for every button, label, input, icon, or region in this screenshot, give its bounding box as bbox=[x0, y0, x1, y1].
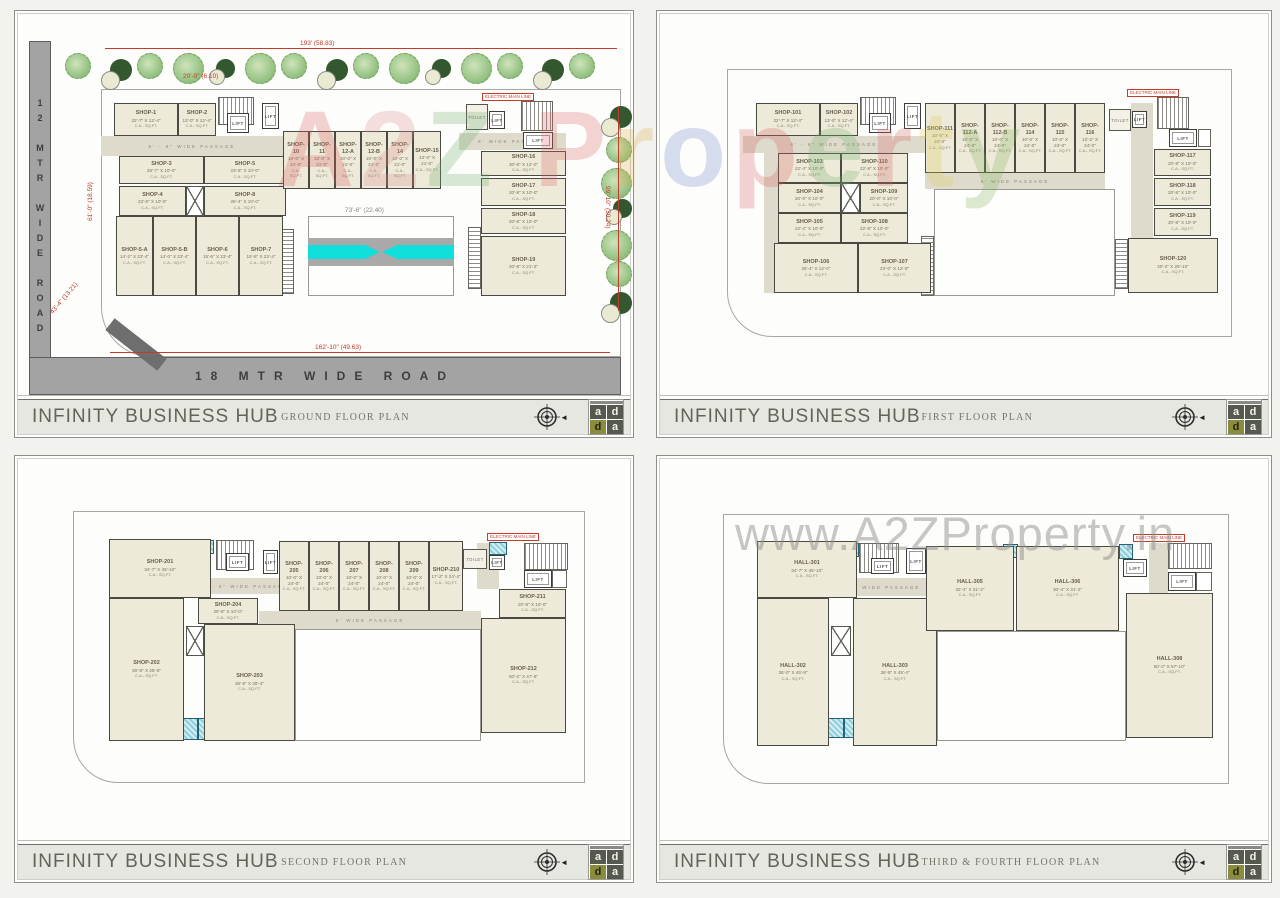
tree bbox=[601, 106, 632, 137]
room-shop-114: SHOP-11410'-0" X 24'-0"C.A.- SQ.FT. bbox=[1015, 103, 1045, 173]
electric-main-line-label: ELECTRIC MAIN LINE bbox=[487, 533, 539, 541]
dimension-label: 193' (58.83) bbox=[300, 40, 335, 47]
room-shop-11: SHOP-1110'-0" X 21'-0"C.A.- SQ.FT. bbox=[309, 131, 335, 189]
tree bbox=[606, 137, 632, 163]
tree bbox=[317, 59, 348, 90]
room-shop-17: SHOP-1720'-8" X 10'-0"C.A.- SQ.FT. bbox=[481, 178, 566, 206]
title-bar-first: INFINITY BUSINESS HUB FIRST FLOOR PLAN ◄… bbox=[660, 399, 1268, 434]
lift: LIFT bbox=[871, 558, 894, 574]
lift: LIFT bbox=[1169, 129, 1197, 147]
room-shop-204: SHOP-20420'-8" X 10'-0"C.A.- SQ.FT. bbox=[198, 598, 258, 624]
title-bar-second: INFINITY BUSINESS HUB SECOND FLOOR PLAN … bbox=[18, 844, 630, 879]
lift-shaft bbox=[841, 183, 860, 213]
tree bbox=[209, 59, 235, 85]
staircase bbox=[1115, 239, 1128, 289]
tree bbox=[389, 53, 420, 84]
lift: LIFT bbox=[904, 103, 921, 129]
utility-box bbox=[182, 718, 198, 740]
toilet: TOILET bbox=[463, 549, 487, 569]
room-shop-1: SHOP-122'-7" X 12'-4"C.A.- SQ.FT. bbox=[114, 103, 178, 136]
room-shop-16: SHOP-1630'-8" X 12'-0"C.A.- SQ.FT. bbox=[481, 151, 566, 176]
adda-logo-tagline bbox=[590, 401, 623, 404]
tree bbox=[461, 53, 492, 84]
room-shop-109: SHOP-10920'-0" X 10'-0"C.A.- SQ.FT. bbox=[860, 183, 908, 213]
room-shop-107: SHOP-10723'-0" X 12'-0"C.A.- SQ.FT. bbox=[858, 243, 931, 293]
open-courtyard bbox=[934, 189, 1115, 296]
room-shop-102: SHOP-10213'-0" X 12'-4"C.A.- SQ.FT. bbox=[820, 103, 858, 136]
compass-icon: ◄ bbox=[1172, 849, 1206, 875]
room-shop-8: SHOP-826'-4" X 10'-0"C.A.- SQ.FT. bbox=[204, 186, 286, 216]
plan-drawing-ground: 12 MTR WIDE ROAD18 MTR WIDE ROAD6' - 6" … bbox=[15, 11, 633, 437]
floor-plan-panel-ground: 12 MTR WIDE ROAD18 MTR WIDE ROAD6' - 6" … bbox=[14, 10, 634, 438]
room-shop-104: SHOP-10420'-0" X 10'-0"C.A.- SQ.FT. bbox=[778, 183, 841, 213]
room-shop-210: SHOP-21017'-2" X 24'-4"C.A.- SQ.FT. bbox=[429, 541, 463, 611]
dimension-label: 99'-10" (30.24) bbox=[604, 186, 611, 229]
room-shop-105: SHOP-10522'-4" X 10'-0"C.A.- SQ.FT. bbox=[778, 213, 841, 243]
room-shop-119: SHOP-11920'-8" X 10'-0"C.A.- SQ.FT. bbox=[1154, 208, 1211, 236]
staircase bbox=[1157, 97, 1189, 129]
room-shop-212: SHOP-21250'-2" X 47'-8"C.A.- SQ.FT. bbox=[481, 618, 566, 733]
floor-plan-panel-third-fourth: 6' - 6" WIDE PASSAGELIFTLIFTLIFTLIFTELEC… bbox=[656, 455, 1272, 883]
adda-logo: a d d a bbox=[588, 844, 624, 880]
lift-shaft bbox=[831, 626, 851, 656]
room-shop-3: SHOP-326'-7" X 10'-0"C.A.- SQ.FT. bbox=[119, 156, 204, 184]
north-arrow-icon: ◄ bbox=[1198, 858, 1206, 867]
room-hall-306: HALL-30630'-4" X 31'-2"C.A.- SQ.FT. bbox=[1016, 546, 1119, 631]
lift-shaft bbox=[186, 626, 204, 656]
small-room bbox=[552, 570, 567, 588]
plan-name: FIRST FLOOR PLAN bbox=[921, 412, 1033, 423]
room-shop-5-a: SHOP-5-A14'-2" X 23'-4"C.A.- SQ.FT. bbox=[116, 216, 153, 296]
dimension-label: 20'-0" (6.10) bbox=[183, 73, 218, 80]
room-shop-117: SHOP-11720'-8" X 10'-0"C.A.- SQ.FT. bbox=[1154, 149, 1211, 176]
room-shop-111: SHOP-11110'-0" X 24'-0"C.A.- SQ.FT. bbox=[925, 103, 955, 173]
tree bbox=[497, 53, 523, 79]
adda-logo: a d d a bbox=[588, 399, 624, 435]
utility-box bbox=[1119, 544, 1133, 559]
room-shop-211: SHOP-21120'-8" X 10'-0"C.A.- SQ.FT. bbox=[499, 589, 566, 618]
utility-box bbox=[489, 542, 507, 555]
adda-logo-letter: a bbox=[607, 420, 623, 434]
room-shop-110: SHOP-11022'-8" X 10'-0"C.A.- SQ.FT. bbox=[841, 153, 908, 183]
open-courtyard bbox=[295, 629, 481, 741]
adda-logo-tagline bbox=[590, 846, 623, 849]
lift: LIFT bbox=[489, 111, 505, 129]
adda-logo-letter: d bbox=[590, 865, 606, 879]
adda-logo-letter: d bbox=[590, 420, 606, 434]
plan-drawing-third-fourth: 6' - 6" WIDE PASSAGELIFTLIFTLIFTLIFTELEC… bbox=[657, 456, 1271, 882]
room-shop-106: SHOP-10626'-4" X 12'-0"C.A.- SQ.FT. bbox=[774, 243, 858, 293]
room-shop-120: SHOP-12020'-2" X 25'-10"C.A.- SQ.FT. bbox=[1128, 238, 1218, 293]
room-shop-10: SHOP-1010'-0" X 21'-0"C.A.- SQ.FT. bbox=[283, 131, 309, 189]
room-shop-202: SHOP-20236'-9" X 45'-8"C.A.- SQ.FT. bbox=[109, 598, 184, 741]
room-shop-115: SHOP-11510'-0" X 24'-0"C.A.- SQ.FT. bbox=[1045, 103, 1075, 173]
tree bbox=[606, 261, 632, 287]
north-arrow-icon: ◄ bbox=[1198, 413, 1206, 422]
room-shop-101: SHOP-10122'-7" X 12'-4"C.A.- SQ.FT. bbox=[756, 103, 820, 136]
compass-icon: ◄ bbox=[1172, 404, 1206, 430]
dimension-line bbox=[110, 352, 610, 353]
adda-logo-letter: d bbox=[607, 405, 623, 419]
tree bbox=[245, 53, 276, 84]
tree bbox=[425, 59, 451, 85]
lift: LIFT bbox=[869, 113, 891, 133]
adda-logo-letter: d bbox=[1245, 405, 1261, 419]
project-title: INFINITY BUSINESS HUB bbox=[32, 851, 279, 873]
room-shop-116: SHOP-11613'-2" X 24'-0"C.A.- SQ.FT. bbox=[1075, 103, 1105, 173]
adda-logo: a d d a bbox=[1226, 399, 1262, 435]
lift: LIFT bbox=[524, 570, 552, 588]
lift: LIFT bbox=[262, 103, 279, 129]
room-shop-14: SHOP-1410'-0" X 21'-0"C.A.- SQ.FT. bbox=[387, 131, 413, 189]
adda-logo-letter: a bbox=[1245, 865, 1261, 879]
tree bbox=[533, 59, 564, 90]
adda-logo-letter: a bbox=[607, 865, 623, 879]
plan-drawing-first: 6' - 6" WIDE PASSAGE6' WIDE PASSAGELIFTL… bbox=[657, 11, 1271, 437]
room-shop-206: SHOP-20610'-0" X 24'-0"C.A.- SQ.FT. bbox=[309, 541, 339, 611]
floor-plan-panel-second: 6' - 6" WIDE PASSAGE6' WIDE PASSAGELIFTL… bbox=[14, 455, 634, 883]
tree bbox=[601, 292, 632, 323]
adda-logo-letter: a bbox=[590, 850, 606, 864]
electric-main-line-label: ELECTRIC MAIN LINE bbox=[1133, 534, 1185, 542]
lift: LIFT bbox=[226, 553, 249, 571]
room-hall-308: HALL-30850'-2" X 57'-10"C.A.- SQ.FT. bbox=[1126, 593, 1213, 738]
room-shop-12-b: SHOP-12-B10'-0" X 21'-0"C.A.- SQ.FT. bbox=[361, 131, 387, 189]
compass-icon: ◄ bbox=[534, 849, 568, 875]
dimension-line bbox=[105, 48, 617, 49]
lift: LIFT bbox=[227, 113, 249, 133]
adda-logo-letter: d bbox=[1228, 420, 1244, 434]
compass-icon: ◄ bbox=[534, 404, 568, 430]
adda-logo-letter: a bbox=[590, 405, 606, 419]
title-bar-ground: INFINITY BUSINESS HUB GROUND FLOOR PLAN … bbox=[18, 399, 630, 434]
staircase bbox=[524, 543, 568, 570]
lift: LIFT bbox=[1132, 111, 1147, 128]
utility-box bbox=[828, 718, 844, 738]
adda-logo-letter: d bbox=[607, 850, 623, 864]
passage: 6' - 6" WIDE PASSAGE bbox=[743, 136, 925, 153]
room-shop-19: SHOP-1920'-8" X 21'-2"C.A.- SQ.FT. bbox=[481, 236, 566, 296]
dimension-label: 162'-10" (49.63) bbox=[315, 344, 361, 351]
room-shop-15: SHOP-1513'-0" X 21'-0"C.A.- SQ.FT. bbox=[413, 131, 441, 189]
room-shop-112-b: SHOP-112-B10'-0" X 24'-0"C.A.- SQ.FT. bbox=[985, 103, 1015, 173]
room-hall-301: HALL-30134'-7" X 45'-10"C.A.- SQ.FT. bbox=[757, 541, 857, 598]
adda-logo-letter: a bbox=[1228, 405, 1244, 419]
room-shop-205: SHOP-20510'-0" X 24'-0"C.A.- SQ.FT. bbox=[279, 541, 309, 611]
tree bbox=[137, 53, 163, 79]
room-shop-7: SHOP-715'-6" X 23'-4"C.A.- SQ.FT. bbox=[239, 216, 283, 296]
tree bbox=[281, 53, 307, 79]
project-title: INFINITY BUSINESS HUB bbox=[674, 406, 921, 428]
tree bbox=[601, 230, 632, 261]
plan-name: GROUND FLOOR PLAN bbox=[281, 412, 410, 423]
toilet: TOILET bbox=[466, 104, 488, 130]
room-shop-203: SHOP-20336'-8" X 38'-4"C.A.- SQ.FT. bbox=[204, 624, 295, 741]
room-shop-5: SHOP-523'-8" X 10'-0"C.A.- SQ.FT. bbox=[204, 156, 286, 184]
lift: LIFT bbox=[906, 548, 926, 574]
dimension-label: 43'-4" (13.21) bbox=[49, 281, 79, 315]
room-shop-2: SHOP-213'-0" X 12'-4"C.A.- SQ.FT. bbox=[178, 103, 216, 136]
electric-main-line-label: ELECTRIC MAIN LINE bbox=[482, 93, 534, 101]
lift: LIFT bbox=[489, 555, 505, 570]
passage: 6' - 6" WIDE PASSAGE bbox=[211, 578, 279, 594]
passage: 6' WIDE PASSAGE bbox=[925, 173, 1105, 189]
room-shop-5-b: SHOP-5-B14'-0" X 23'-4"C.A.- SQ.FT. bbox=[153, 216, 196, 296]
project-title: INFINITY BUSINESS HUB bbox=[32, 406, 279, 428]
north-arrow-icon: ◄ bbox=[560, 858, 568, 867]
room-shop-103: SHOP-10322'-4" X 10'-0"C.A.- SQ.FT. bbox=[778, 153, 841, 183]
room-shop-118: SHOP-11820'-8" X 10'-0"C.A.- SQ.FT. bbox=[1154, 178, 1211, 206]
floor-plan-sheet: 12 MTR WIDE ROAD18 MTR WIDE ROAD6' - 6" … bbox=[0, 0, 1280, 898]
tree bbox=[101, 59, 132, 90]
passage: 6' - 6" WIDE PASSAGE bbox=[101, 136, 283, 156]
road: 18 MTR WIDE ROAD bbox=[29, 357, 621, 395]
staircase bbox=[468, 227, 481, 289]
adda-logo: a d d a bbox=[1226, 844, 1262, 880]
adda-logo-letter: d bbox=[1228, 865, 1244, 879]
small-room bbox=[1196, 572, 1212, 591]
adda-logo-letter: a bbox=[1245, 420, 1261, 434]
room-hall-302: HALL-30236'-0" X 45'-8"C.A.- SQ.FT. bbox=[757, 598, 829, 746]
adda-logo-letter: a bbox=[1228, 850, 1244, 864]
floor-plan-panel-first: 6' - 6" WIDE PASSAGE6' WIDE PASSAGELIFTL… bbox=[656, 10, 1272, 438]
small-room bbox=[1198, 129, 1211, 147]
staircase bbox=[1168, 543, 1212, 569]
lift: LIFT bbox=[263, 550, 278, 574]
plan-name: SECOND FLOOR PLAN bbox=[281, 857, 407, 868]
room-shop-4: SHOP-423'-6" X 10'-0"C.A.- SQ.FT. bbox=[119, 186, 186, 216]
room-shop-208: SHOP-20810'-0" X 24'-0"C.A.- SQ.FT. bbox=[369, 541, 399, 611]
room-shop-12-a: SHOP-12-A10'-0" X 21'-0"C.A.- SQ.FT. bbox=[335, 131, 361, 189]
room-shop-108: SHOP-10822'-8" X 10'-0"C.A.- SQ.FT. bbox=[841, 213, 908, 243]
dimension-label: 61'-0" (18.59) bbox=[87, 182, 94, 221]
north-arrow-icon: ◄ bbox=[560, 413, 568, 422]
tree bbox=[65, 53, 91, 79]
electric-main-line-label: ELECTRIC MAIN LINE bbox=[1127, 89, 1179, 97]
room-shop-6: SHOP-615'-6" X 23'-4"C.A.- SQ.FT. bbox=[196, 216, 239, 296]
tree bbox=[569, 53, 595, 79]
adda-logo-tagline bbox=[1228, 846, 1261, 849]
lift: LIFT bbox=[523, 132, 553, 149]
room-shop-207: SHOP-20710'-0" X 24'-0"C.A.- SQ.FT. bbox=[339, 541, 369, 611]
plan-drawing-second: 6' - 6" WIDE PASSAGE6' WIDE PASSAGELIFTL… bbox=[15, 456, 633, 882]
lift-shaft bbox=[186, 186, 204, 216]
road: 12 MTR WIDE ROAD bbox=[29, 41, 51, 395]
adda-logo-tagline bbox=[1228, 401, 1261, 404]
room-shop-209: SHOP-20910'-0" X 24'-0"C.A.- SQ.FT. bbox=[399, 541, 429, 611]
adda-logo-letter: d bbox=[1245, 850, 1261, 864]
lift: LIFT bbox=[1123, 559, 1147, 577]
passage bbox=[1149, 543, 1168, 593]
room-shop-18: SHOP-1820'-8" X 10'-0"C.A.- SQ.FT. bbox=[481, 208, 566, 234]
tree bbox=[353, 53, 379, 79]
dimension-line bbox=[618, 106, 619, 311]
room-shop-201: SHOP-20134'-7" X 45'-10"C.A.- SQ.FT. bbox=[109, 539, 211, 598]
room-shop-112-a: SHOP-112-A10'-0" X 24'-0"C.A.- SQ.FT. bbox=[955, 103, 985, 173]
staircase bbox=[521, 101, 553, 131]
dimension-label: 73'-6" (22.40) bbox=[345, 207, 384, 214]
road-label: 12 MTR WIDE ROAD bbox=[35, 98, 45, 338]
toilet: TOILET bbox=[1109, 109, 1131, 131]
open-courtyard bbox=[937, 631, 1126, 741]
lift: LIFT bbox=[1168, 572, 1196, 591]
room-hall-305: HALL-30532'-4" X 31'-2"C.A.- SQ.FT. bbox=[926, 546, 1014, 631]
plan-name: THIRD & FOURTH FLOOR PLAN bbox=[921, 857, 1100, 868]
road-label: 18 MTR WIDE ROAD bbox=[195, 369, 455, 383]
water-feature bbox=[308, 238, 454, 266]
project-title: INFINITY BUSINESS HUB bbox=[674, 851, 921, 873]
room-hall-303: HALL-30336'-8" X 45'-4"C.A.- SQ.FT. bbox=[853, 598, 937, 746]
title-bar-third-fourth: INFINITY BUSINESS HUB THIRD & FOURTH FLO… bbox=[660, 844, 1268, 879]
